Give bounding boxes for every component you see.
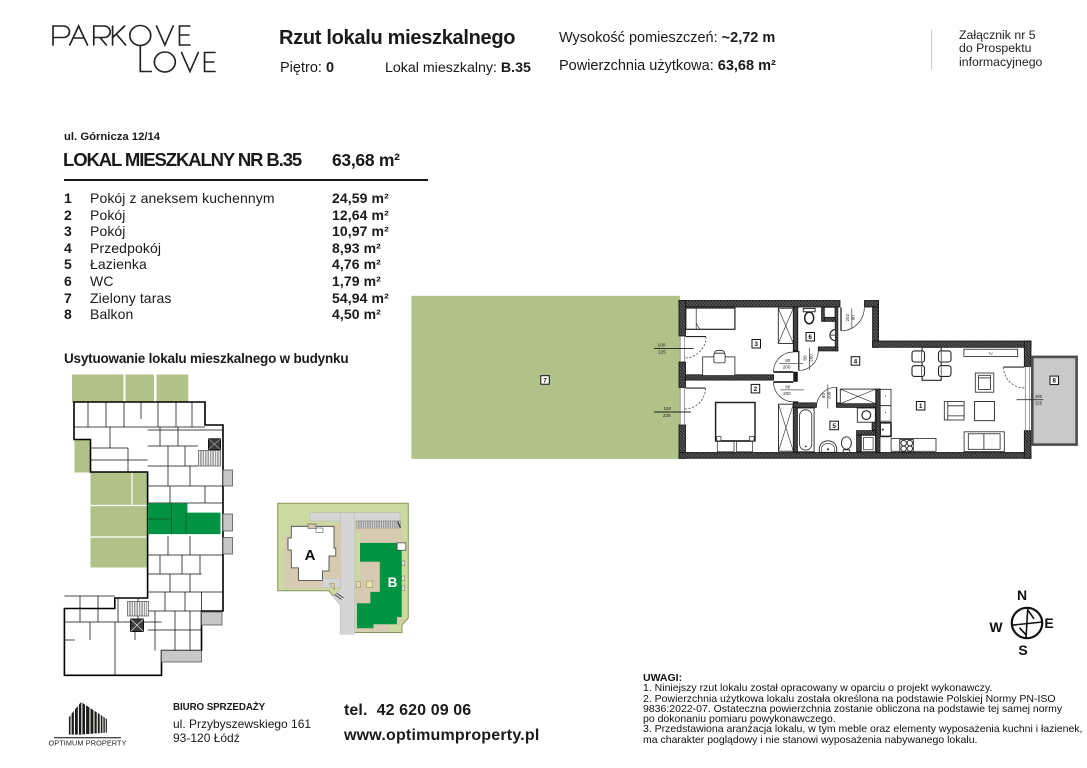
svg-text:200: 200: [808, 354, 813, 362]
svg-text:225: 225: [658, 350, 666, 355]
svg-text:7: 7: [543, 377, 547, 384]
svg-text:1: 1: [919, 403, 923, 410]
svg-text:80: 80: [821, 393, 826, 399]
svg-text:100: 100: [658, 343, 666, 348]
svg-text:4: 4: [854, 358, 858, 365]
svg-text:200: 200: [783, 365, 791, 370]
svg-text:80: 80: [803, 355, 808, 361]
svg-text:90: 90: [851, 315, 856, 321]
svg-text:8: 8: [1052, 378, 1056, 385]
svg-text:5: 5: [832, 423, 836, 430]
svg-text:6: 6: [808, 334, 812, 341]
svg-text:TV: TV: [988, 352, 993, 356]
svg-text:200: 200: [827, 391, 832, 399]
svg-text:225: 225: [663, 413, 671, 418]
svg-text:3: 3: [754, 341, 758, 348]
svg-text:80: 80: [785, 358, 791, 363]
svg-text:150: 150: [663, 406, 671, 411]
svg-text:260: 260: [1035, 394, 1043, 399]
svg-text:200: 200: [783, 391, 791, 396]
svg-text:2: 2: [754, 386, 758, 393]
svg-text:225: 225: [1035, 400, 1043, 405]
svg-text:202: 202: [845, 313, 850, 321]
svg-text:80: 80: [785, 384, 791, 389]
